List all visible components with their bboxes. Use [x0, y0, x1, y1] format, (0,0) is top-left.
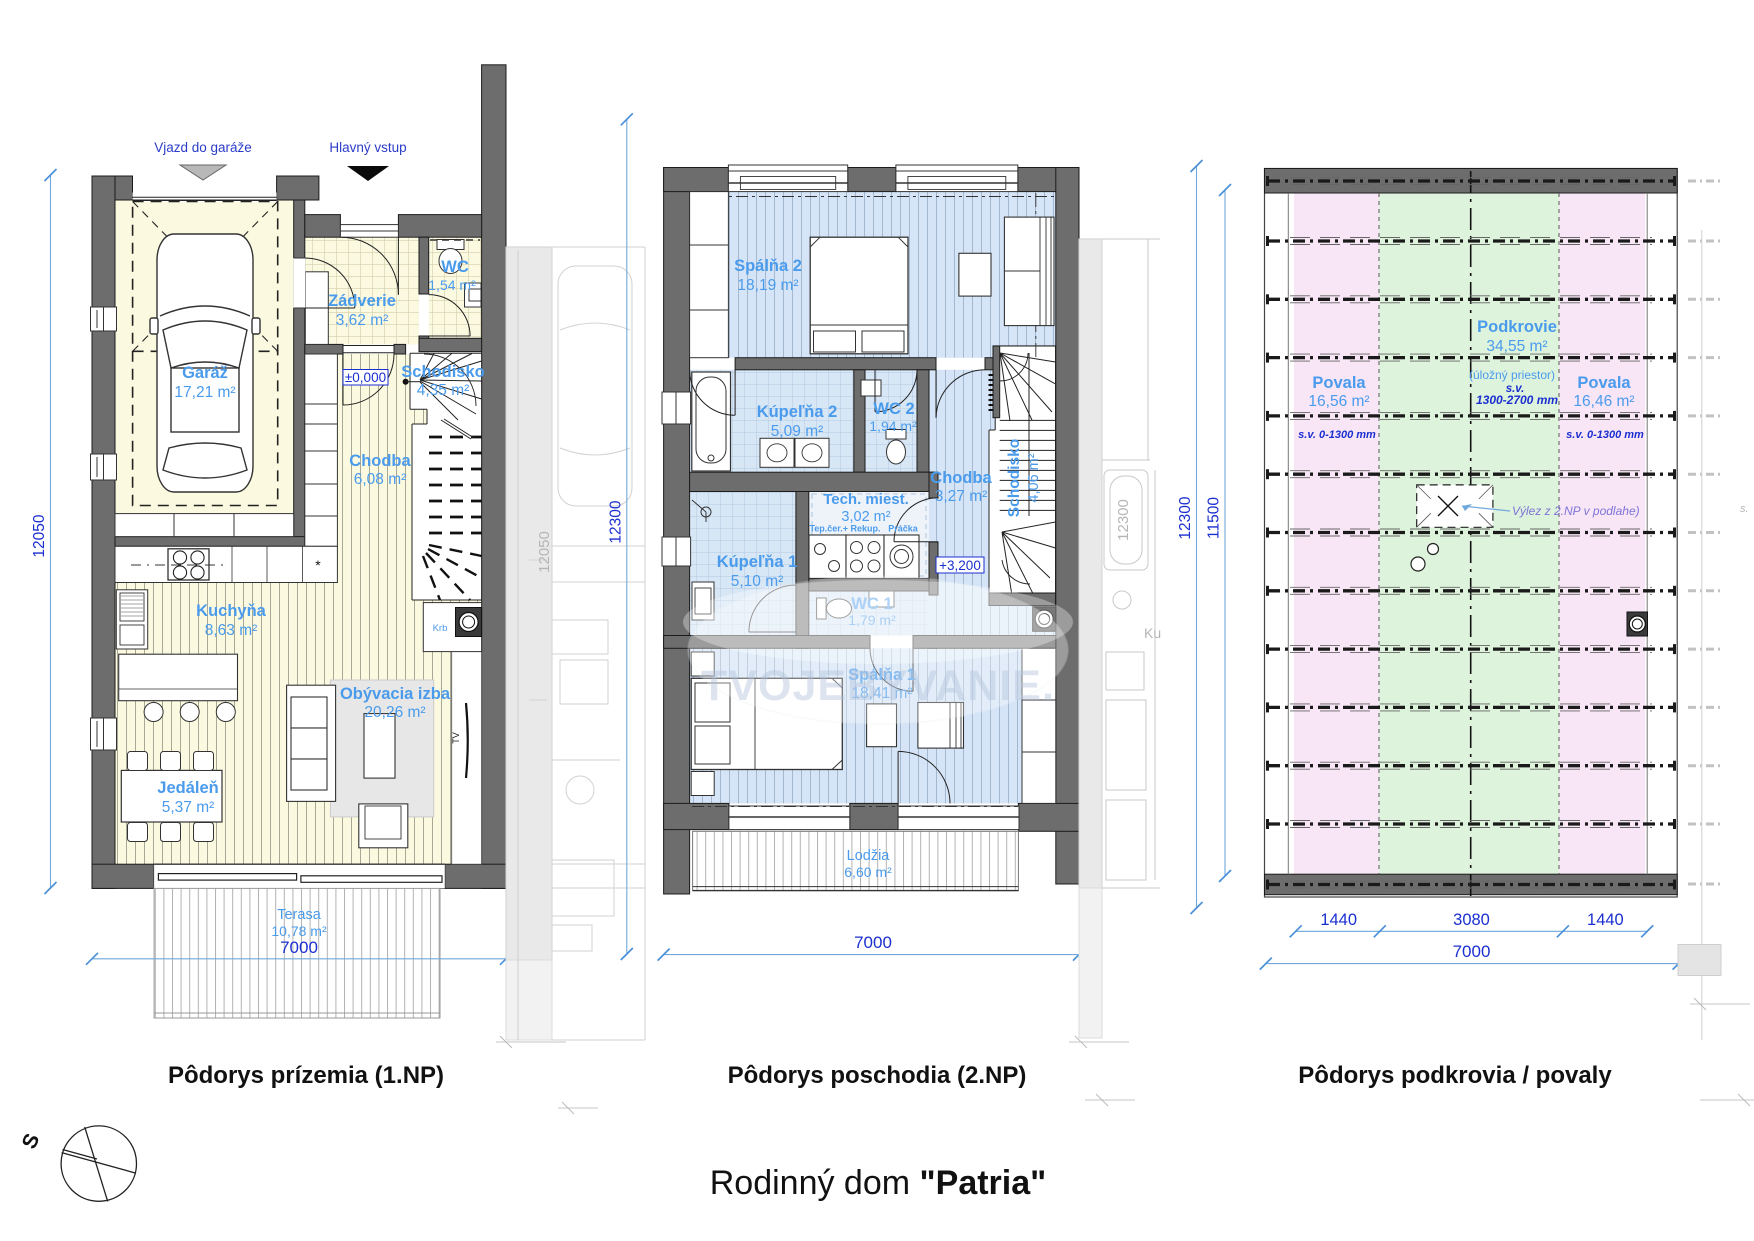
svg-text:Ku: Ku: [1144, 625, 1161, 641]
svg-text:Chodba: Chodba: [349, 452, 411, 470]
svg-text:12050: 12050: [31, 514, 48, 557]
svg-text:s.v. 0-1300 mm: s.v. 0-1300 mm: [1298, 429, 1376, 441]
svg-text:Práčka: Práčka: [888, 524, 919, 534]
svg-text:s.v. 0-1300 mm: s.v. 0-1300 mm: [1566, 429, 1644, 441]
svg-text:16,56 m²: 16,56 m²: [1308, 393, 1369, 410]
svg-text:TVOJEBYVANIE.: TVOJEBYVANIE.: [701, 662, 1055, 710]
svg-text:18,19 m²: 18,19 m²: [737, 277, 798, 294]
svg-text:3,62 m²: 3,62 m²: [336, 312, 389, 329]
svg-text:Kúpeľňa 1: Kúpeľňa 1: [717, 553, 798, 571]
svg-text:10,78 m²: 10,78 m²: [271, 923, 327, 939]
svg-text:Schodisko: Schodisko: [401, 363, 484, 381]
svg-text:1300-2700 mm: 1300-2700 mm: [1476, 393, 1558, 407]
svg-text:20,26 m²: 20,26 m²: [364, 704, 425, 721]
svg-text:12300: 12300: [1115, 499, 1132, 541]
svg-text:(úložný priestor): (úložný priestor): [1469, 368, 1555, 382]
svg-text:Kuchyňa: Kuchyňa: [196, 602, 267, 620]
svg-text:8,63 m²: 8,63 m²: [205, 622, 258, 639]
svg-text:12050: 12050: [536, 531, 553, 573]
svg-text:7000: 7000: [854, 933, 892, 952]
svg-text:34,55 m²: 34,55 m²: [1486, 338, 1547, 355]
svg-text:Tech. miest.: Tech. miest.: [823, 491, 909, 508]
svg-text:1440: 1440: [1587, 911, 1624, 929]
svg-text:+3,200: +3,200: [939, 558, 981, 573]
svg-text:WC 2: WC 2: [873, 400, 914, 418]
svg-text:Povala: Povala: [1577, 374, 1631, 392]
svg-text:6,08 m²: 6,08 m²: [354, 471, 407, 488]
svg-text:5,37 m²: 5,37 m²: [162, 799, 215, 816]
svg-text:7000: 7000: [1453, 942, 1491, 961]
svg-text:Obývacia izba: Obývacia izba: [340, 685, 451, 703]
svg-text:Tep.čer.+ Rekup.: Tep.čer.+ Rekup.: [809, 524, 880, 534]
svg-text:12300: 12300: [608, 500, 625, 543]
svg-text:Vjazd do garáže: Vjazd do garáže: [154, 140, 252, 155]
svg-text:Rodinný dom "Patria": Rodinný dom "Patria": [710, 1164, 1047, 1202]
svg-text:±0,000: ±0,000: [345, 370, 386, 385]
svg-text:Spálňa 2: Spálňa 2: [734, 257, 802, 275]
svg-text:Hlavný vstup: Hlavný vstup: [329, 140, 406, 155]
svg-text:Kúpeľňa 2: Kúpeľňa 2: [757, 403, 838, 421]
svg-text:1440: 1440: [1320, 911, 1357, 929]
svg-text:Chodba: Chodba: [930, 469, 992, 487]
svg-text:3080: 3080: [1453, 911, 1490, 929]
svg-text:Lodžia: Lodžia: [847, 848, 891, 864]
svg-text:11500: 11500: [1206, 497, 1223, 539]
svg-text:s.: s.: [1740, 503, 1749, 515]
svg-text:5,09 m²: 5,09 m²: [771, 423, 824, 440]
svg-text:Podkrovie: Podkrovie: [1477, 318, 1557, 336]
svg-text:Pôdorys poschodia (2.NP): Pôdorys poschodia (2.NP): [728, 1062, 1027, 1089]
svg-text:1,54 m²: 1,54 m²: [428, 277, 476, 293]
svg-text:12300: 12300: [1177, 496, 1194, 539]
svg-text:1,94 m²: 1,94 m²: [869, 418, 917, 434]
svg-text:Schodisko: Schodisko: [1006, 439, 1023, 517]
svg-text:7000: 7000: [280, 938, 318, 957]
svg-text:Zádverie: Zádverie: [328, 292, 396, 310]
svg-text:Garáž: Garáž: [182, 364, 228, 382]
svg-text:3,27 m²: 3,27 m²: [935, 488, 988, 505]
svg-text:6,60 m²: 6,60 m²: [844, 864, 892, 880]
svg-text:17,21 m²: 17,21 m²: [174, 384, 235, 401]
svg-text:4,06 m²: 4,06 m²: [1026, 453, 1042, 502]
svg-text:4,35 m²: 4,35 m²: [417, 382, 470, 399]
svg-text:Výlez z 2.NP v podlahe): Výlez z 2.NP v podlahe): [1512, 504, 1640, 518]
svg-text:TV: TV: [451, 732, 461, 744]
svg-text:*: *: [315, 557, 321, 573]
svg-text:Terasa: Terasa: [277, 907, 321, 923]
svg-text:Krb: Krb: [433, 623, 448, 634]
svg-text:Jedáleň: Jedáleň: [157, 779, 218, 797]
svg-text:Pôdorys podkrovia / povaly: Pôdorys podkrovia / povaly: [1298, 1062, 1612, 1089]
svg-text:16,46 m²: 16,46 m²: [1573, 393, 1634, 410]
svg-text:Pôdorys prízemia (1.NP): Pôdorys prízemia (1.NP): [168, 1062, 444, 1089]
svg-text:Povala: Povala: [1312, 374, 1366, 392]
svg-text:WC: WC: [441, 258, 469, 276]
